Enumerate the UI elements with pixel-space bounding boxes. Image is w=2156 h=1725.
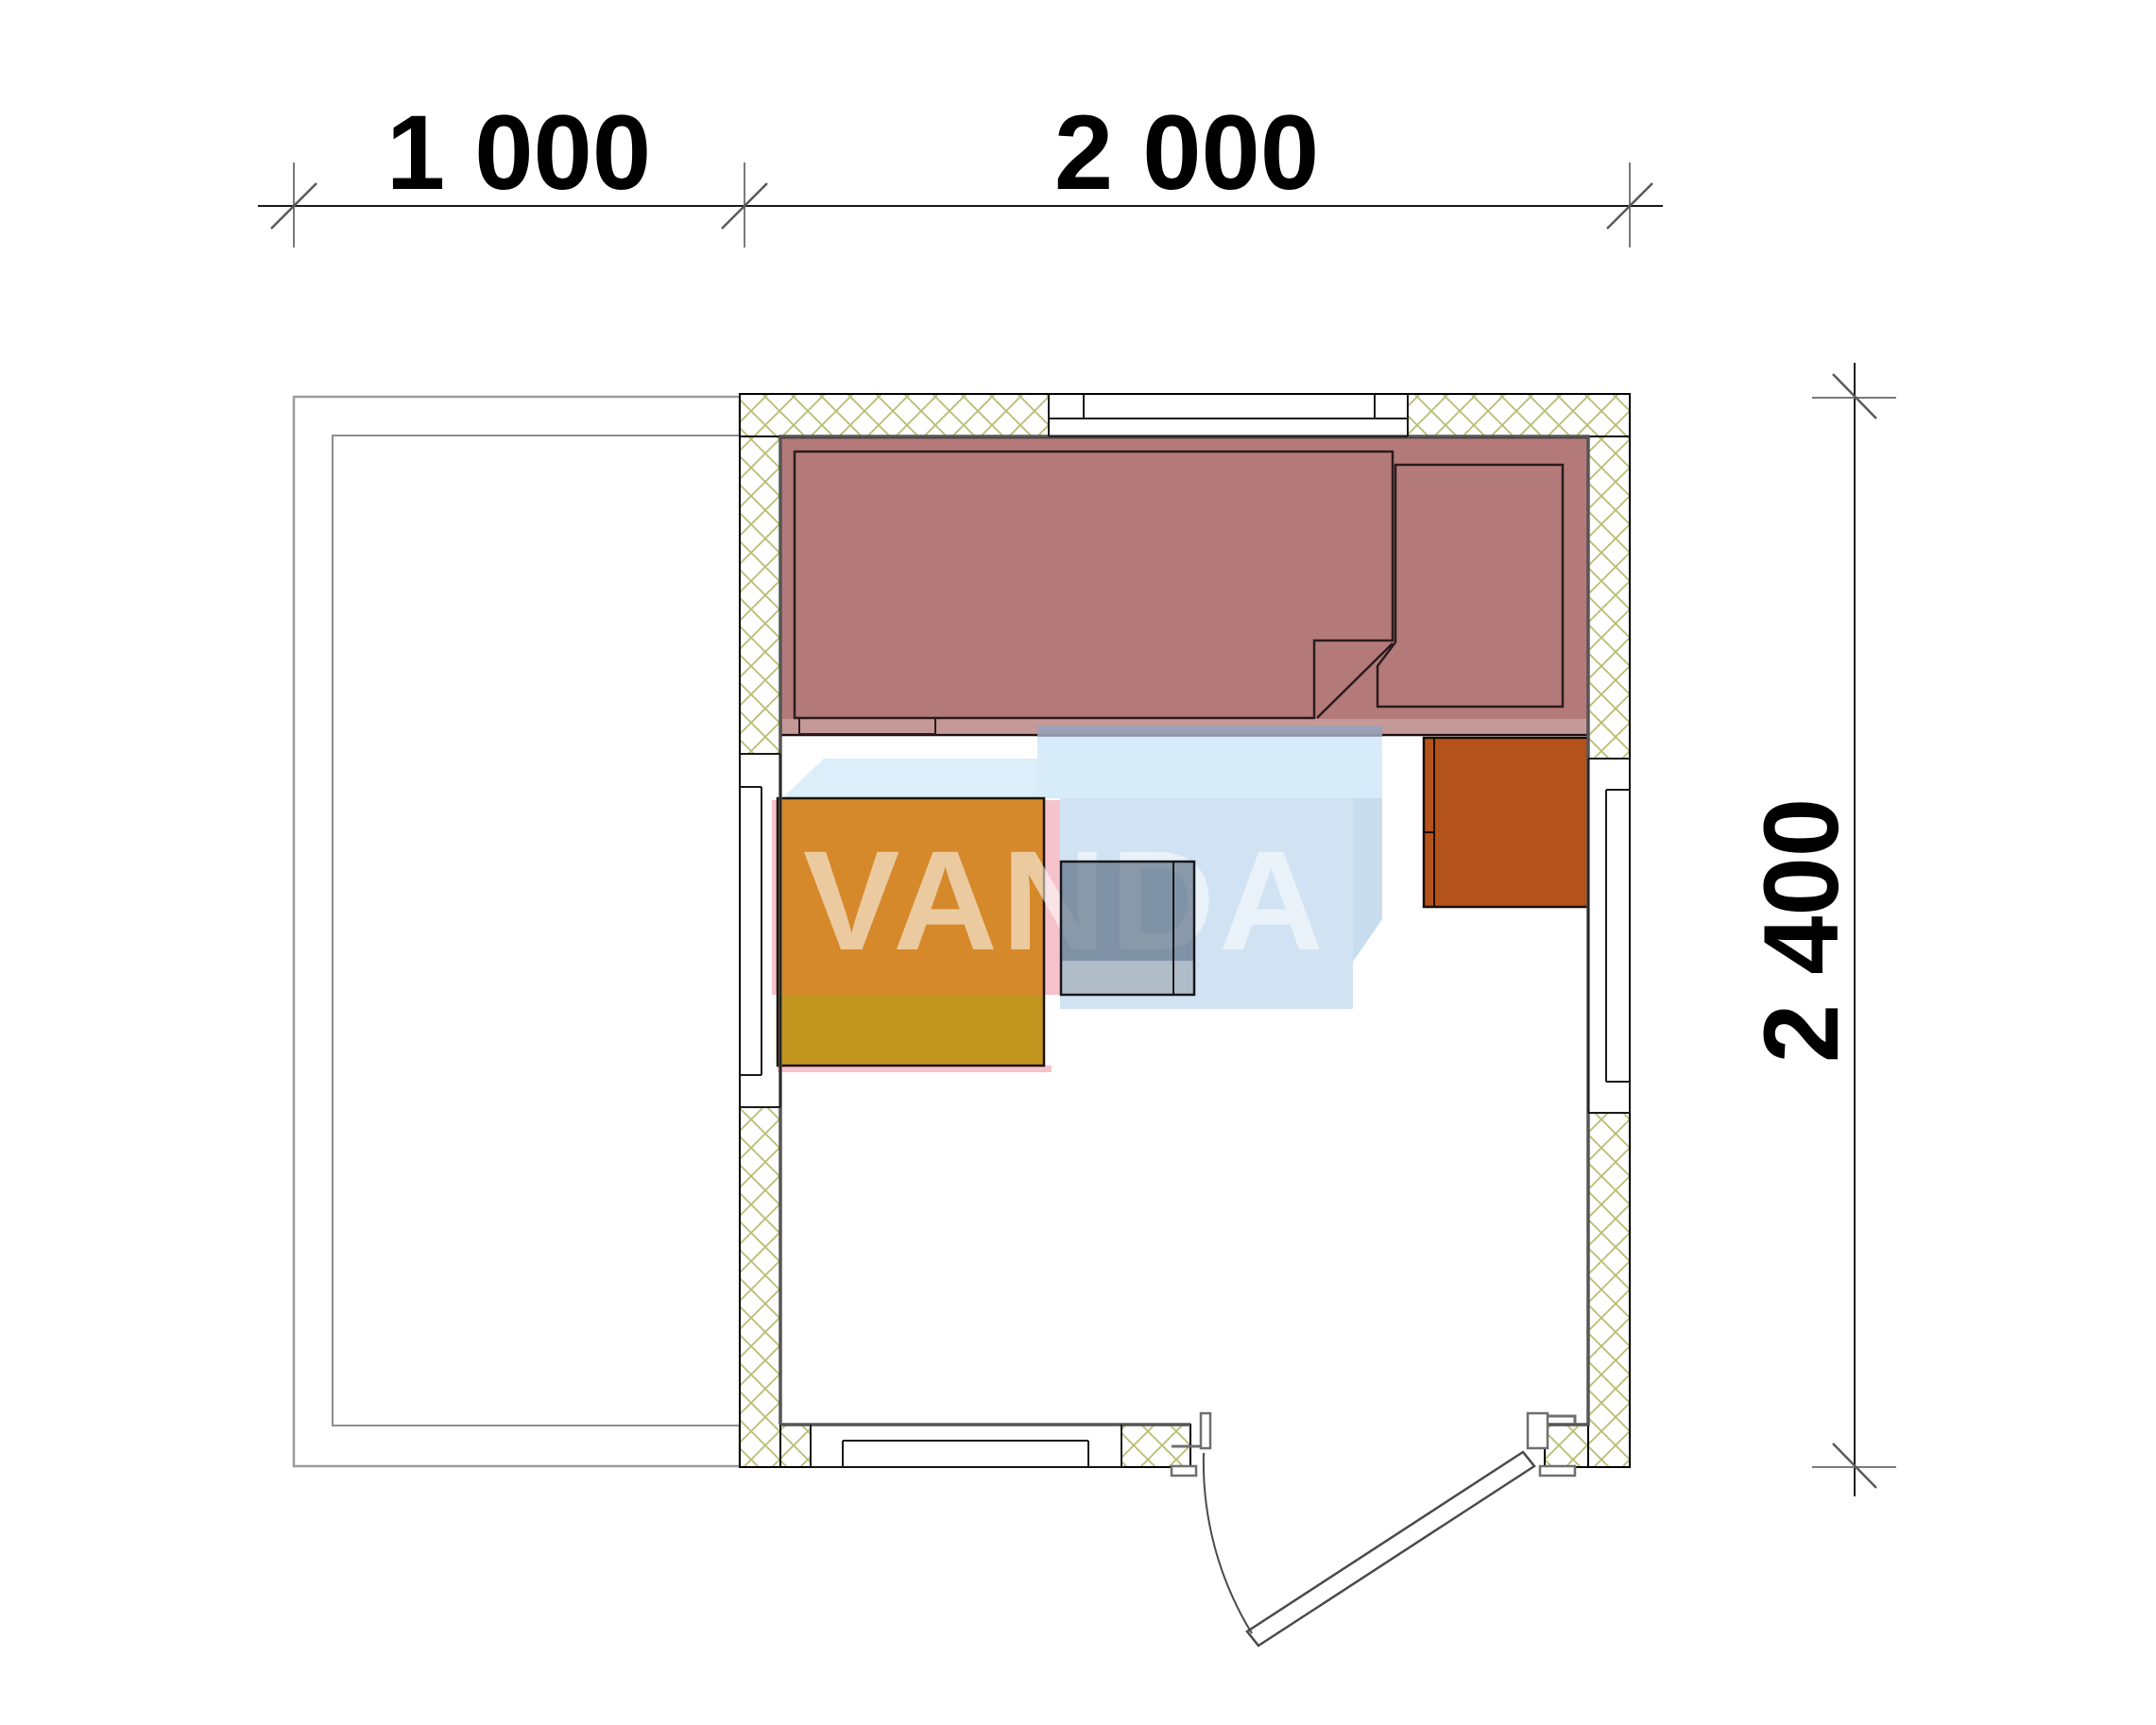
- wall-left-upper-segment: [740, 436, 780, 754]
- terrace-inner-outline: [333, 436, 740, 1426]
- watermark-box-back-edge: [1037, 726, 1382, 737]
- dim-label-building-width: 2 000: [1054, 94, 1319, 212]
- window-top-frame-caps: [1084, 395, 1375, 418]
- window-right-frame-caps: [1606, 790, 1630, 1082]
- door-frame-right-cap: [1540, 1466, 1575, 1476]
- window-right-jambs: [1588, 759, 1630, 1113]
- door-frame-left: [1201, 1413, 1210, 1448]
- window-right-edges: [1588, 759, 1630, 1113]
- watermark-box-top-left: [782, 759, 1037, 798]
- watermark-box-top-right: [1037, 737, 1382, 798]
- bed: [780, 437, 1588, 735]
- dimension-top: 1 000 2 000: [258, 94, 1663, 248]
- wall-left-lower-segment: [740, 1107, 780, 1467]
- window-left-frame-caps: [740, 787, 761, 1075]
- wall-right-upper-segment: [1588, 436, 1630, 759]
- dim-label-terrace-width: 1 000: [386, 94, 651, 212]
- window-top-jambs: [1049, 394, 1408, 436]
- window-bottom-jambs: [811, 1425, 1121, 1467]
- window-right: [1588, 759, 1630, 1113]
- wall-top-left-segment: [740, 394, 1049, 436]
- sauna-heater: [1424, 738, 1588, 907]
- door-leaf: [1247, 1452, 1534, 1646]
- window-bottom-frame-caps: [843, 1441, 1088, 1467]
- wall-bottom-left-segment: [780, 1425, 811, 1467]
- dimension-right: 2 400: [1742, 363, 1896, 1496]
- door-frame-left-cap: [1172, 1466, 1196, 1476]
- door: [1172, 1413, 1575, 1646]
- window-top: [1049, 394, 1408, 436]
- wall-right-lower-segment: [1588, 1113, 1630, 1467]
- dim-label-building-height: 2 400: [1742, 798, 1860, 1063]
- door-frame-right: [1528, 1413, 1548, 1448]
- window-bottom: [811, 1425, 1121, 1467]
- heater-body: [1424, 738, 1588, 907]
- stove: [1061, 862, 1194, 995]
- door-swing-arc: [1204, 1453, 1252, 1633]
- wall-top-right-segment: [1408, 394, 1630, 436]
- terrace: [294, 397, 740, 1466]
- wall-bottom-right-segment: [1545, 1425, 1588, 1467]
- bed-platform: [780, 437, 1588, 735]
- floor-plan-svg: VANDA: [0, 0, 2156, 1725]
- bench-bottom: [778, 995, 1044, 1066]
- floor-plan-page: VANDA: [0, 0, 2156, 1725]
